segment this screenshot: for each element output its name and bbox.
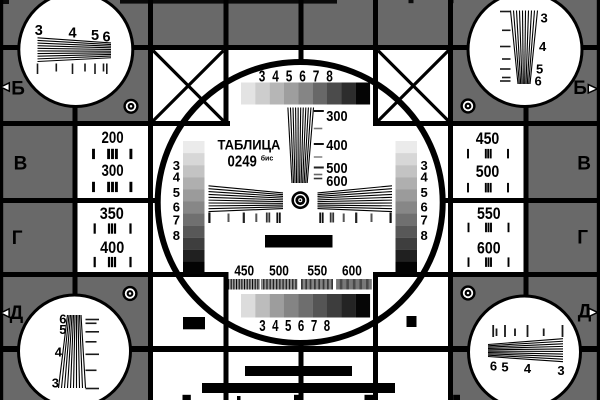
- svg-text:ТАБЛИЦА: ТАБЛИЦА: [218, 137, 281, 153]
- svg-text:5: 5: [421, 185, 428, 200]
- svg-text:6: 6: [299, 67, 306, 85]
- svg-text:Г: Г: [577, 228, 588, 249]
- svg-text:6: 6: [102, 30, 110, 46]
- svg-text:6: 6: [535, 74, 542, 89]
- svg-text:5: 5: [501, 360, 508, 375]
- svg-text:200: 200: [101, 129, 123, 148]
- svg-text:4: 4: [272, 317, 279, 334]
- svg-text:В: В: [14, 154, 28, 175]
- svg-text:5: 5: [286, 67, 293, 85]
- svg-text:3: 3: [52, 376, 59, 391]
- svg-text:В: В: [577, 154, 591, 175]
- svg-text:8: 8: [326, 67, 333, 85]
- svg-text:4: 4: [68, 26, 76, 42]
- svg-text:4: 4: [272, 67, 279, 85]
- svg-text:3: 3: [35, 23, 43, 39]
- svg-text:4: 4: [539, 39, 547, 54]
- svg-text:7: 7: [311, 317, 317, 334]
- svg-text:8: 8: [324, 317, 331, 334]
- svg-text:4: 4: [421, 170, 429, 185]
- svg-text:8: 8: [173, 228, 180, 243]
- svg-text:450: 450: [476, 130, 500, 148]
- svg-text:6: 6: [298, 317, 305, 334]
- svg-text:Д: Д: [10, 303, 24, 324]
- svg-text:5: 5: [59, 322, 66, 337]
- svg-text:550: 550: [477, 205, 501, 223]
- svg-text:400: 400: [100, 239, 124, 257]
- svg-text:600: 600: [326, 172, 347, 189]
- svg-text:7: 7: [173, 213, 180, 228]
- svg-text:3: 3: [259, 317, 266, 334]
- svg-text:5: 5: [91, 28, 99, 44]
- svg-text:500: 500: [269, 262, 289, 279]
- svg-text:300: 300: [326, 107, 347, 124]
- svg-text:7: 7: [313, 67, 320, 85]
- svg-text:Г: Г: [12, 228, 23, 249]
- svg-text:0249: 0249: [228, 153, 257, 170]
- svg-text:3: 3: [557, 363, 564, 378]
- svg-text:600: 600: [477, 239, 501, 257]
- svg-text:450: 450: [234, 262, 254, 279]
- svg-text:бис: бис: [261, 155, 274, 163]
- svg-text:500: 500: [476, 163, 500, 181]
- svg-text:Б: Б: [573, 78, 587, 99]
- svg-text:5: 5: [173, 185, 180, 200]
- svg-text:300: 300: [101, 162, 123, 181]
- svg-text:8: 8: [421, 228, 428, 243]
- svg-text:400: 400: [326, 136, 347, 153]
- svg-text:3: 3: [541, 11, 548, 26]
- svg-text:5: 5: [285, 317, 292, 334]
- svg-text:350: 350: [100, 205, 124, 223]
- svg-text:4: 4: [524, 361, 532, 376]
- svg-text:3: 3: [259, 67, 266, 85]
- svg-text:600: 600: [342, 262, 362, 279]
- svg-text:550: 550: [307, 262, 327, 279]
- svg-text:Б: Б: [11, 78, 25, 99]
- svg-text:6: 6: [490, 359, 497, 374]
- svg-text:4: 4: [55, 345, 63, 360]
- svg-text:4: 4: [173, 170, 181, 185]
- svg-text:7: 7: [421, 213, 428, 228]
